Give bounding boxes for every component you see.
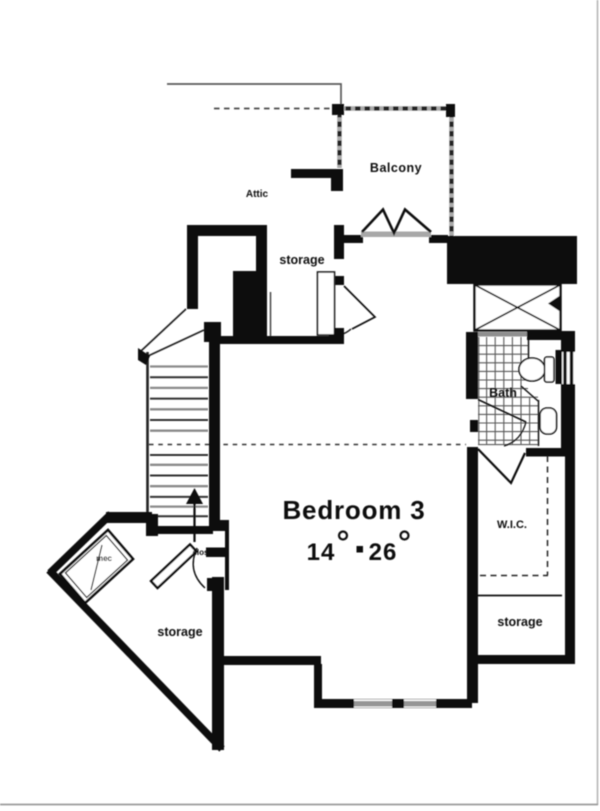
svg-text:storage: storage bbox=[279, 253, 324, 267]
svg-text:Bedroom 3: Bedroom 3 bbox=[282, 495, 425, 525]
svg-text:Attic: Attic bbox=[246, 189, 269, 200]
svg-text:14: 14 bbox=[307, 539, 336, 566]
svg-text:mec: mec bbox=[96, 554, 113, 563]
svg-text:26: 26 bbox=[369, 539, 398, 566]
svg-text:Bath: Bath bbox=[489, 386, 517, 400]
svg-text:W.I.C.: W.I.C. bbox=[497, 519, 527, 531]
svg-text:storage: storage bbox=[497, 615, 542, 629]
svg-text:closet: closet bbox=[192, 548, 215, 557]
svg-text:storage: storage bbox=[157, 625, 202, 639]
svg-text:Balcony: Balcony bbox=[370, 161, 422, 175]
